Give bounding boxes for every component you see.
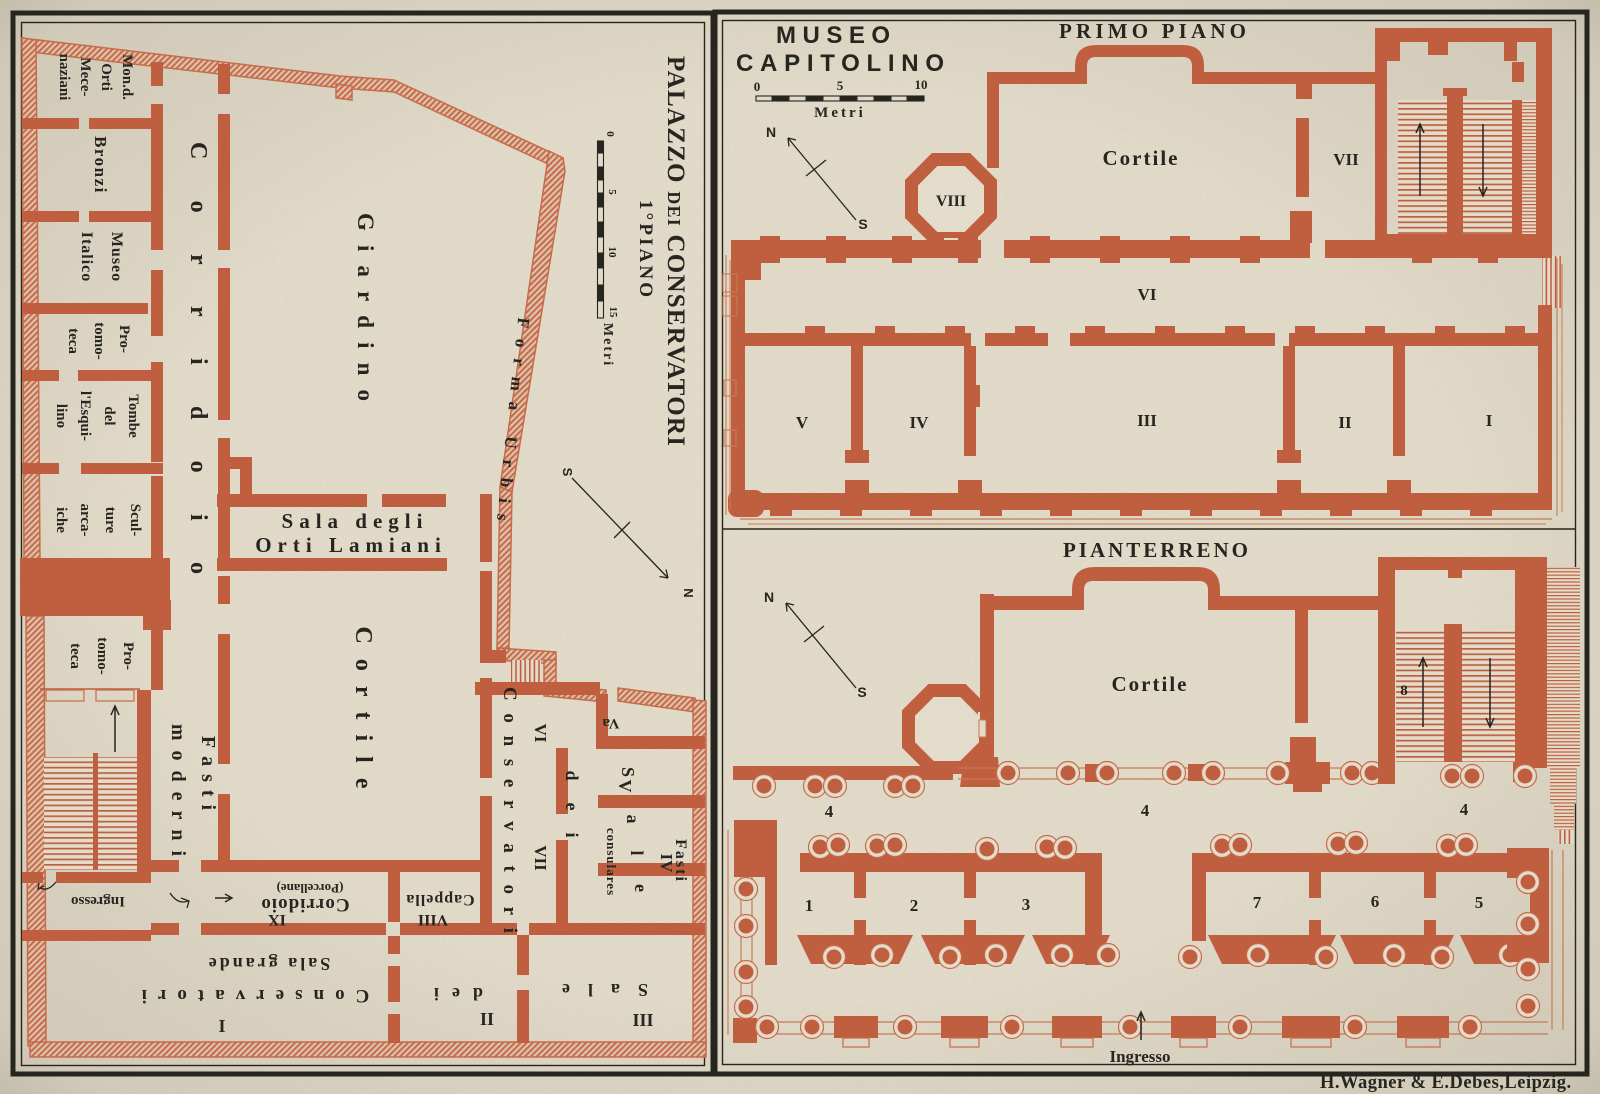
svg-text:Cortile: Cortile <box>1103 146 1180 170</box>
svg-text:S: S <box>560 468 575 477</box>
svg-text:Sale: Sale <box>544 980 648 1000</box>
svg-text:1°PIANO: 1°PIANO <box>635 200 656 297</box>
svg-text:tomo-: tomo- <box>91 322 107 360</box>
svg-text:teca: teca <box>67 643 83 669</box>
svg-text:consulares: consulares <box>604 828 619 896</box>
svg-text:Italico: Italico <box>78 232 95 283</box>
svg-text:Bronzi: Bronzi <box>91 136 110 194</box>
svg-text:8: 8 <box>1400 683 1408 699</box>
svg-text:0: 0 <box>604 131 616 137</box>
svg-text:4: 4 <box>1460 800 1469 819</box>
svg-text:VI: VI <box>531 724 550 743</box>
svg-text:PIANTERRENO: PIANTERRENO <box>1063 538 1248 562</box>
svg-text:l: l <box>627 850 647 855</box>
svg-text:4: 4 <box>825 802 834 821</box>
svg-text:S: S <box>618 767 638 777</box>
svg-text:V: V <box>615 780 635 793</box>
svg-text:III: III <box>1137 411 1157 430</box>
svg-text:II: II <box>480 1009 494 1029</box>
svg-text:Fasti: Fasti <box>197 736 219 818</box>
svg-text:Orti Lamiani: Orti Lamiani <box>255 533 447 557</box>
svg-text:iche: iche <box>53 507 69 533</box>
svg-text:a: a <box>623 815 643 824</box>
svg-text:IV: IV <box>910 413 930 432</box>
svg-text:IX: IX <box>268 911 286 928</box>
svg-text:arca-: arca- <box>77 503 93 536</box>
svg-text:V: V <box>796 413 809 432</box>
svg-text:Mece-: Mece- <box>77 57 93 96</box>
svg-text:Museo: Museo <box>108 232 125 282</box>
svg-text:Tombe: Tombe <box>125 394 141 438</box>
svg-text:Pro-: Pro- <box>120 642 136 670</box>
svg-text:Cappella: Cappella <box>405 891 474 908</box>
svg-text:Cortile: Cortile <box>1112 672 1189 696</box>
svg-text:PALAZZO DEI CONSERVATORI: PALAZZO DEI CONSERVATORI <box>662 56 689 446</box>
svg-text:IV: IV <box>657 854 676 874</box>
svg-text:PRIMO PIANO: PRIMO PIANO <box>1059 19 1246 43</box>
svg-text:Mon.d.: Mon.d. <box>119 54 135 100</box>
svg-text:(Porcellane): (Porcellane) <box>277 881 344 896</box>
svg-text:I: I <box>218 1016 225 1036</box>
svg-text:3: 3 <box>1022 895 1031 914</box>
svg-text:VIII: VIII <box>936 193 966 210</box>
svg-text:5: 5 <box>1475 893 1484 912</box>
svg-text:Orti: Orti <box>98 63 114 91</box>
svg-text:dei: dei <box>421 984 483 1004</box>
svg-text:VII: VII <box>531 845 550 871</box>
svg-text:l'Esqui-: l'Esqui- <box>77 391 93 441</box>
svg-text:Scul-: Scul- <box>127 504 143 537</box>
svg-text:VIII: VIII <box>418 911 448 928</box>
svg-text:moderni: moderni <box>167 724 189 866</box>
svg-text:S: S <box>858 216 867 232</box>
svg-text:10: 10 <box>606 247 618 259</box>
svg-text:ture: ture <box>102 507 118 534</box>
svg-text:lino: lino <box>53 404 69 428</box>
svg-text:naziani: naziani <box>56 54 72 101</box>
svg-text:N: N <box>766 124 776 140</box>
svg-text:0: 0 <box>754 79 761 94</box>
svg-text:15: 15 <box>607 307 619 319</box>
svg-text:Sala grande: Sala grande <box>206 954 331 974</box>
svg-text:N: N <box>764 589 774 605</box>
svg-text:Metri: Metri <box>814 105 866 121</box>
svg-text:S: S <box>857 684 866 700</box>
svg-text:10: 10 <box>915 77 928 92</box>
svg-text:dei: dei <box>562 770 582 859</box>
svg-text:7: 7 <box>1253 893 1262 912</box>
svg-text:H.Wagner & E.Debes,Leipzig.: H.Wagner & E.Debes,Leipzig. <box>1320 1073 1572 1093</box>
svg-text:Ingresso: Ingresso <box>1109 1047 1170 1066</box>
svg-text:Pro-: Pro- <box>116 325 132 353</box>
svg-text:Sala degli: Sala degli <box>282 509 429 533</box>
svg-text:1: 1 <box>805 896 814 915</box>
svg-text:del: del <box>101 406 117 425</box>
svg-text:Conservatori: Conservatori <box>131 985 370 1006</box>
svg-text:N: N <box>681 588 696 597</box>
svg-text:e: e <box>631 884 651 892</box>
svg-text:Ingresso: Ingresso <box>71 893 125 909</box>
svg-text:4: 4 <box>1141 801 1150 820</box>
svg-text:5: 5 <box>837 78 844 93</box>
svg-text:Metri: Metri <box>600 323 615 367</box>
svg-text:2: 2 <box>910 896 919 915</box>
svg-text:teca: teca <box>65 328 81 354</box>
svg-text:Va: Va <box>602 715 619 731</box>
svg-text:VII: VII <box>1333 150 1359 169</box>
svg-text:II: II <box>1338 413 1352 432</box>
svg-text:VI: VI <box>1138 285 1157 304</box>
svg-text:6: 6 <box>1371 892 1380 911</box>
svg-text:I: I <box>1486 411 1493 430</box>
svg-text:tomo-: tomo- <box>94 637 110 675</box>
svg-text:5: 5 <box>606 189 618 195</box>
svg-text:Cortile: Cortile <box>350 627 376 804</box>
svg-text:MUSEO: MUSEO <box>776 22 890 49</box>
svg-text:III: III <box>632 1010 653 1030</box>
